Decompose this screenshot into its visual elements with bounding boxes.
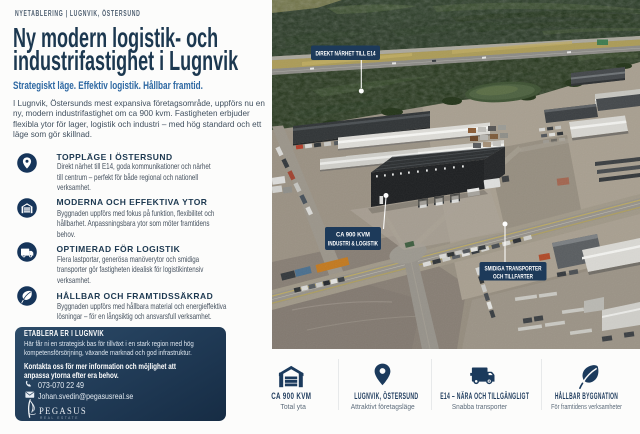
svg-text:INDUSTRI & LOGISTIK: INDUSTRI & LOGISTIK: [328, 241, 378, 248]
svg-text:CA 900 KVM: CA 900 KVM: [336, 232, 370, 239]
svg-text:SMIDIGA TRANSPORTER: SMIDIGA TRANSPORTER: [485, 265, 542, 272]
svg-text:OCH TILLFARTER: OCH TILLFARTER: [493, 273, 533, 280]
svg-text:DIREKT NÄRHET TILL E14: DIREKT NÄRHET TILL E14: [316, 49, 376, 57]
